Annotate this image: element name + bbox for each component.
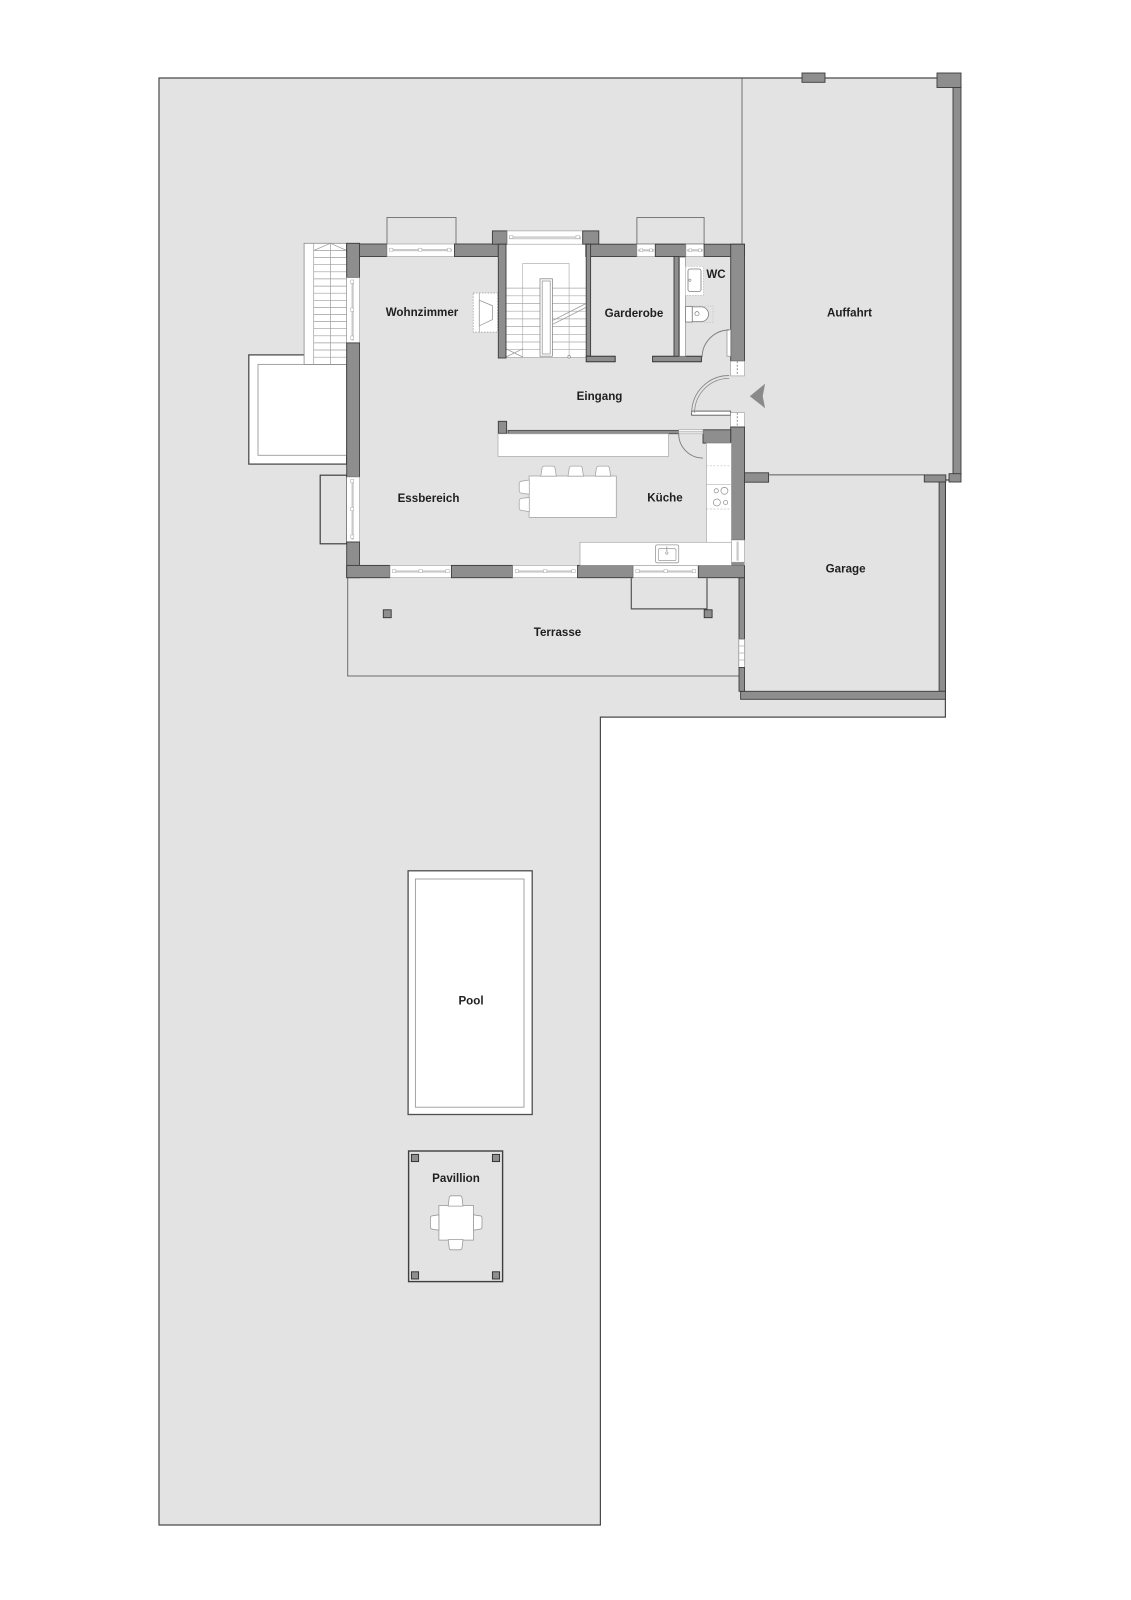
svg-text:Terrasse: Terrasse [534,626,582,639]
svg-text:Garderobe: Garderobe [605,307,664,320]
svg-text:Pool: Pool [458,995,483,1008]
svg-text:Essbereich: Essbereich [398,492,460,505]
svg-text:Pavillion: Pavillion [432,1172,480,1185]
svg-text:Küche: Küche [647,491,683,504]
svg-text:Eingang: Eingang [577,390,623,403]
svg-text:WC: WC [706,268,726,281]
svg-text:Auffahrt: Auffahrt [827,307,872,320]
svg-text:Garage: Garage [826,563,867,576]
svg-text:Wohnzimmer: Wohnzimmer [386,306,459,319]
